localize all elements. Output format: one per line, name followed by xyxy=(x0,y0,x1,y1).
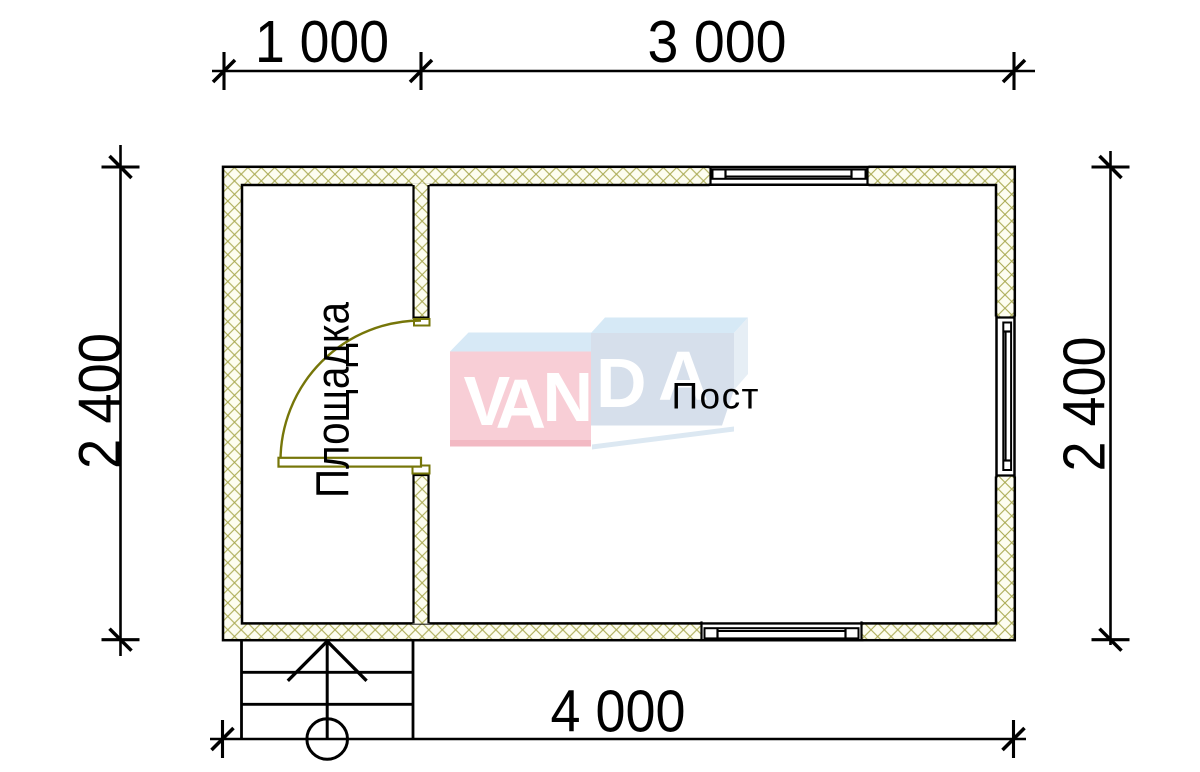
svg-text:3 000: 3 000 xyxy=(648,9,787,75)
svg-text:Пост: Пост xyxy=(672,376,759,417)
svg-text:4 000: 4 000 xyxy=(551,679,686,745)
svg-text:N: N xyxy=(543,358,594,436)
svg-text:2 400: 2 400 xyxy=(1052,337,1118,472)
svg-text:A: A xyxy=(496,365,547,443)
svg-text:1 000: 1 000 xyxy=(255,9,389,75)
svg-text:Площадка: Площадка xyxy=(307,302,359,498)
svg-text:2 400: 2 400 xyxy=(67,333,133,469)
svg-text:D: D xyxy=(596,344,647,422)
